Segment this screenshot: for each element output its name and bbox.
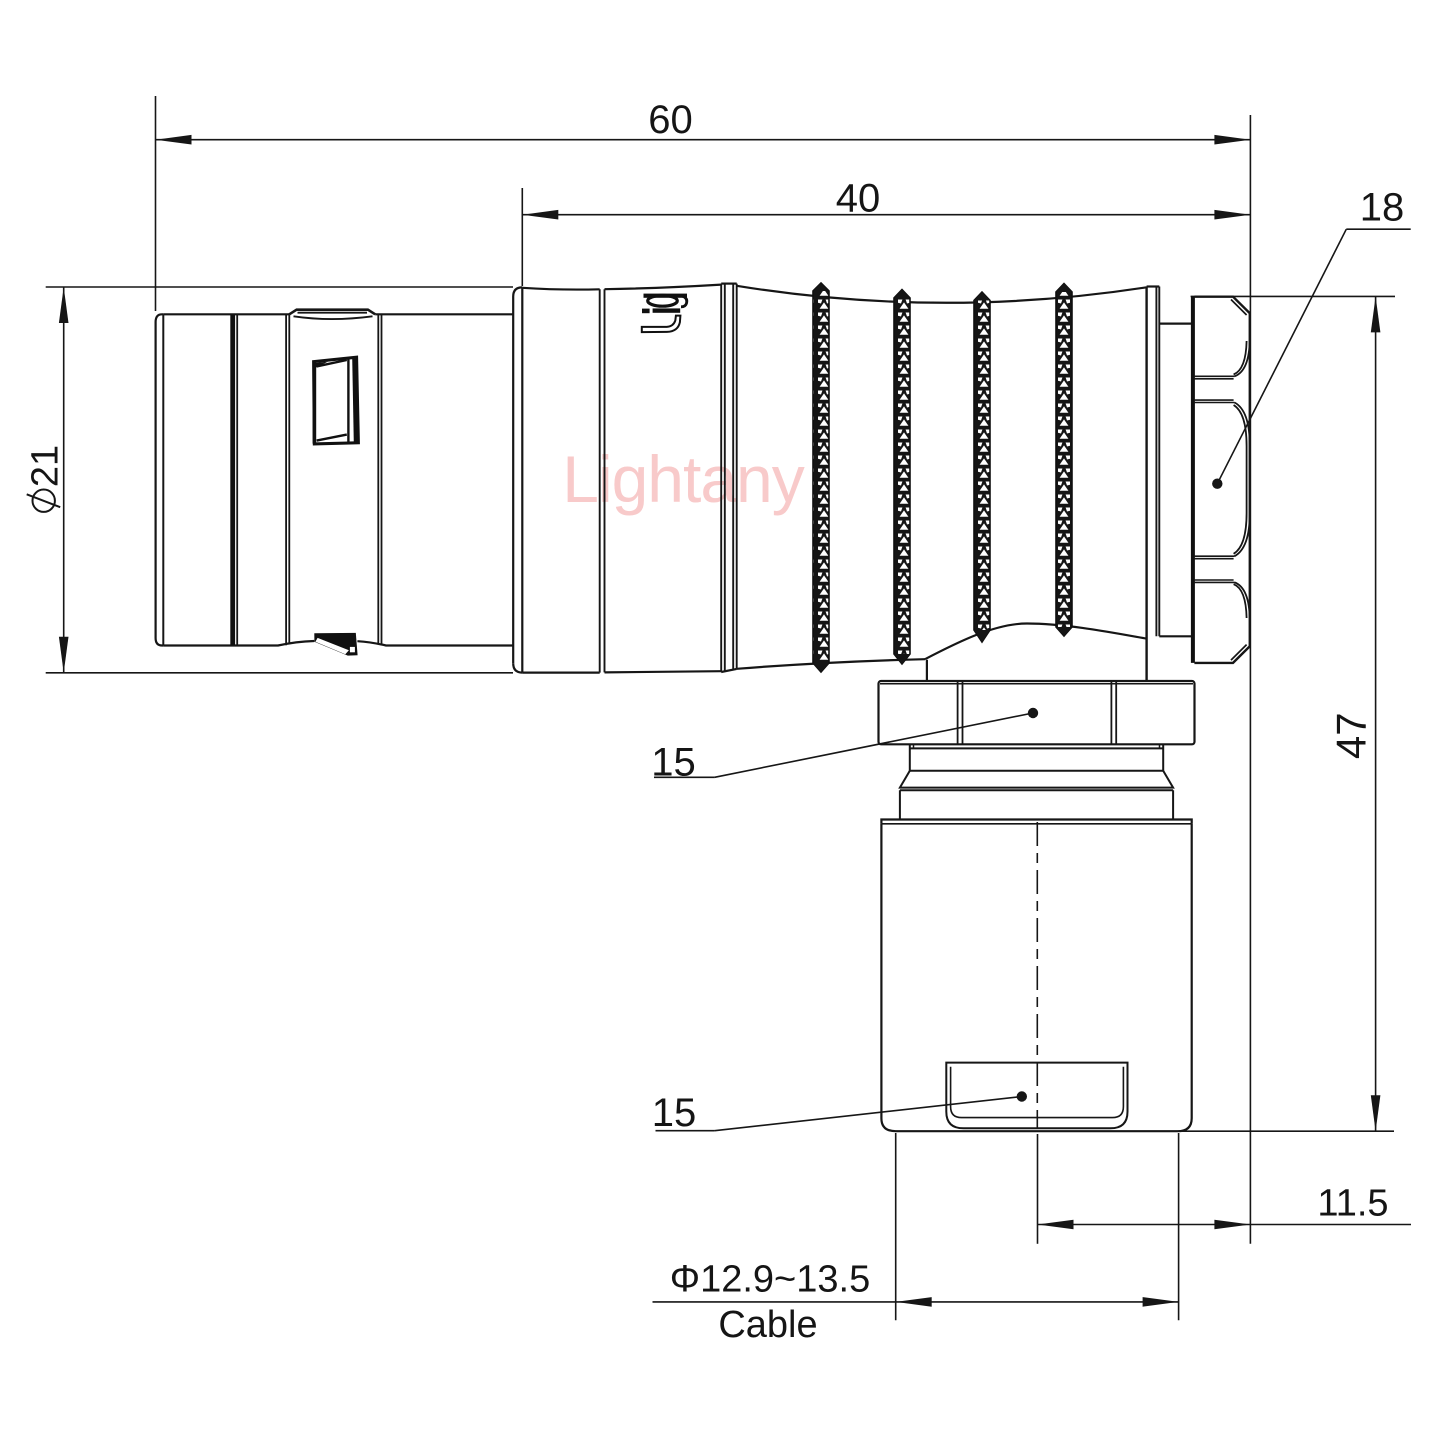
- svg-text:Φ12.9~13.5: Φ12.9~13.5: [670, 1259, 870, 1301]
- svg-text:Cable: Cable: [718, 1304, 817, 1346]
- svg-text:21: 21: [25, 445, 67, 487]
- svg-text:15: 15: [652, 1091, 697, 1135]
- svg-text:18: 18: [1360, 185, 1405, 229]
- svg-text:47: 47: [1328, 712, 1375, 759]
- svg-text:Lightany: Lightany: [562, 442, 805, 516]
- svg-text:11.5: 11.5: [1317, 1183, 1388, 1225]
- svg-text:60: 60: [648, 98, 693, 142]
- svg-text:40: 40: [836, 176, 881, 220]
